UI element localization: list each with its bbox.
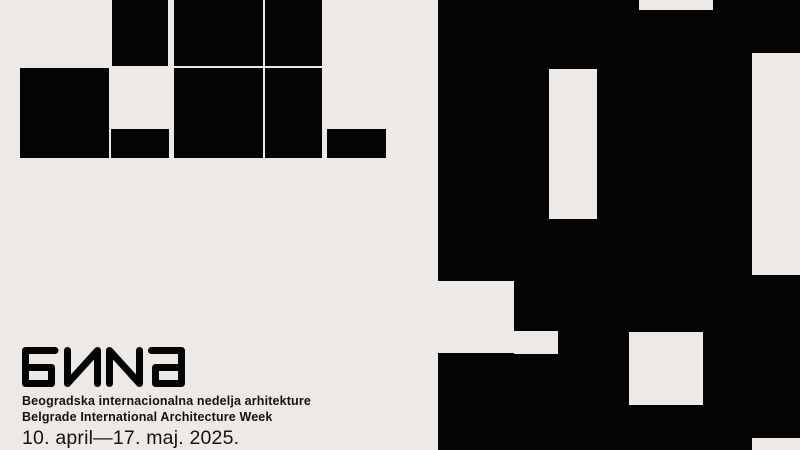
black-block [327,129,386,158]
black-block [111,129,169,158]
tagline-english: Belgrade International Architecture Week [22,410,311,426]
cream-cutout [752,438,800,450]
date-range: 10. april—17. maj. 2025. [22,428,311,448]
black-block [265,0,322,66]
black-block [20,68,109,158]
cream-cutout [629,332,703,405]
brand-block: Beogradska internacionalna nedelja arhit… [22,347,311,448]
cream-cutout [438,281,514,353]
logo-letter-i-icon [68,351,98,384]
right-black-field [438,0,800,450]
cream-cutout [514,331,558,354]
cream-cutout [752,53,800,275]
logo-letter-a-icon [152,351,182,384]
poster: Beogradska internacionalna nedelja arhit… [0,0,800,450]
black-block [174,68,263,158]
logo-letter-b-icon [26,351,56,384]
tagline-serbian: Beogradska internacionalna nedelja arhit… [22,394,311,410]
cream-cutout [549,69,597,219]
black-block [112,0,168,66]
black-block [174,0,263,66]
bina-logo [22,347,185,387]
cream-cutout [639,0,713,10]
logo-letter-n-icon [110,351,140,384]
black-block [265,68,322,158]
